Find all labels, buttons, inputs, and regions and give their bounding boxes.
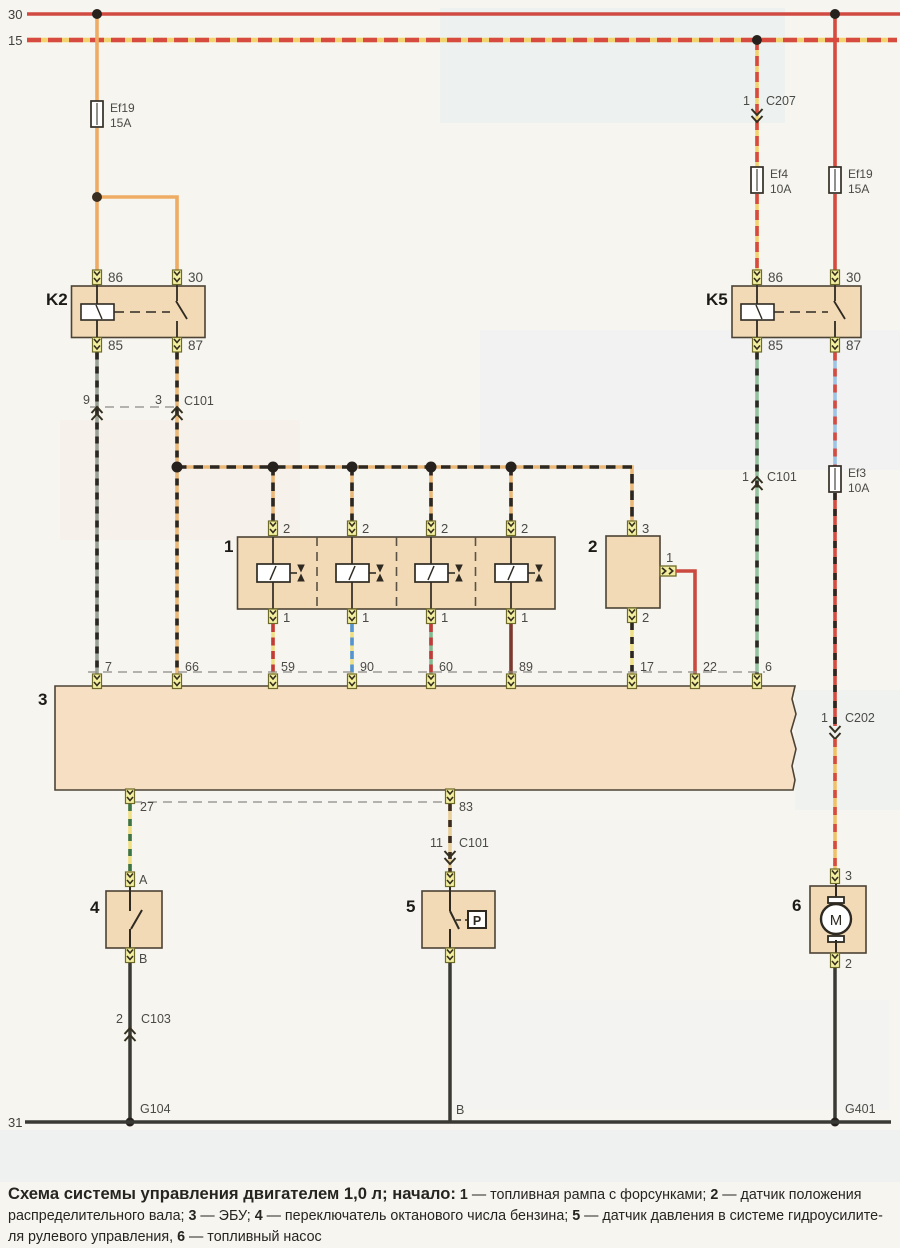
svg-text:Ef19: Ef19 bbox=[110, 101, 135, 115]
svg-text:C101: C101 bbox=[459, 836, 489, 850]
svg-text:C207: C207 bbox=[766, 94, 796, 108]
svg-text:30: 30 bbox=[188, 270, 203, 285]
svg-text:60: 60 bbox=[439, 660, 453, 674]
svg-text:K5: K5 bbox=[706, 290, 728, 309]
svg-text:B: B bbox=[456, 1103, 464, 1117]
svg-text:1: 1 bbox=[521, 610, 528, 625]
svg-text:89: 89 bbox=[519, 660, 533, 674]
svg-text:B: B bbox=[139, 952, 147, 966]
svg-text:1: 1 bbox=[224, 537, 233, 556]
svg-text:87: 87 bbox=[846, 338, 861, 353]
svg-text:4: 4 bbox=[90, 898, 100, 917]
svg-text:2: 2 bbox=[642, 610, 649, 625]
svg-text:3: 3 bbox=[845, 869, 852, 883]
svg-text:A: A bbox=[139, 873, 148, 887]
svg-text:30: 30 bbox=[8, 7, 22, 22]
svg-text:G401: G401 bbox=[845, 1102, 876, 1116]
svg-text:31: 31 bbox=[8, 1115, 22, 1130]
svg-text:2: 2 bbox=[362, 521, 369, 536]
svg-text:30: 30 bbox=[846, 270, 861, 285]
svg-text:85: 85 bbox=[108, 338, 123, 353]
svg-text:6: 6 bbox=[765, 660, 772, 674]
svg-text:2: 2 bbox=[521, 521, 528, 536]
svg-text:10A: 10A bbox=[848, 481, 869, 495]
svg-text:1: 1 bbox=[821, 711, 828, 725]
svg-text:59: 59 bbox=[281, 660, 295, 674]
svg-text:85: 85 bbox=[768, 338, 783, 353]
svg-text:7: 7 bbox=[105, 660, 112, 674]
svg-text:1: 1 bbox=[283, 610, 290, 625]
svg-text:15A: 15A bbox=[848, 182, 869, 196]
svg-text:22: 22 bbox=[703, 660, 717, 674]
svg-text:M: M bbox=[830, 912, 843, 929]
svg-text:83: 83 bbox=[459, 800, 473, 814]
svg-text:2: 2 bbox=[588, 537, 597, 556]
svg-text:86: 86 bbox=[108, 270, 123, 285]
svg-text:Ef4: Ef4 bbox=[770, 167, 788, 181]
svg-text:3: 3 bbox=[155, 393, 162, 407]
svg-text:2: 2 bbox=[441, 521, 448, 536]
svg-text:1: 1 bbox=[362, 610, 369, 625]
svg-text:3: 3 bbox=[38, 690, 47, 709]
svg-text:86: 86 bbox=[768, 270, 783, 285]
svg-text:Ef19: Ef19 bbox=[848, 167, 873, 181]
svg-text:1: 1 bbox=[441, 610, 448, 625]
svg-text:87: 87 bbox=[188, 338, 203, 353]
svg-text:90: 90 bbox=[360, 660, 374, 674]
svg-text:1: 1 bbox=[742, 470, 749, 484]
svg-text:5: 5 bbox=[406, 897, 415, 916]
svg-text:11: 11 bbox=[430, 836, 443, 850]
svg-text:15A: 15A bbox=[110, 116, 131, 130]
svg-text:1: 1 bbox=[666, 550, 673, 565]
svg-text:1: 1 bbox=[743, 94, 750, 108]
svg-text:10A: 10A bbox=[770, 182, 791, 196]
svg-text:15: 15 bbox=[8, 33, 22, 48]
svg-text:Ef3: Ef3 bbox=[848, 466, 866, 480]
svg-text:G104: G104 bbox=[140, 1102, 171, 1116]
svg-text:K2: K2 bbox=[46, 290, 68, 309]
svg-text:17: 17 bbox=[640, 660, 654, 674]
svg-text:2: 2 bbox=[116, 1012, 123, 1026]
svg-text:66: 66 bbox=[185, 660, 199, 674]
svg-text:3: 3 bbox=[642, 521, 649, 536]
svg-text:2: 2 bbox=[845, 957, 852, 971]
svg-text:C103: C103 bbox=[141, 1012, 171, 1026]
svg-text:P: P bbox=[473, 914, 481, 928]
svg-text:6: 6 bbox=[792, 896, 801, 915]
svg-text:C101: C101 bbox=[184, 394, 214, 408]
svg-text:C202: C202 bbox=[845, 711, 875, 725]
svg-text:27: 27 bbox=[140, 800, 154, 814]
svg-text:2: 2 bbox=[283, 521, 290, 536]
svg-text:C101: C101 bbox=[767, 470, 797, 484]
svg-text:9: 9 bbox=[83, 393, 90, 407]
